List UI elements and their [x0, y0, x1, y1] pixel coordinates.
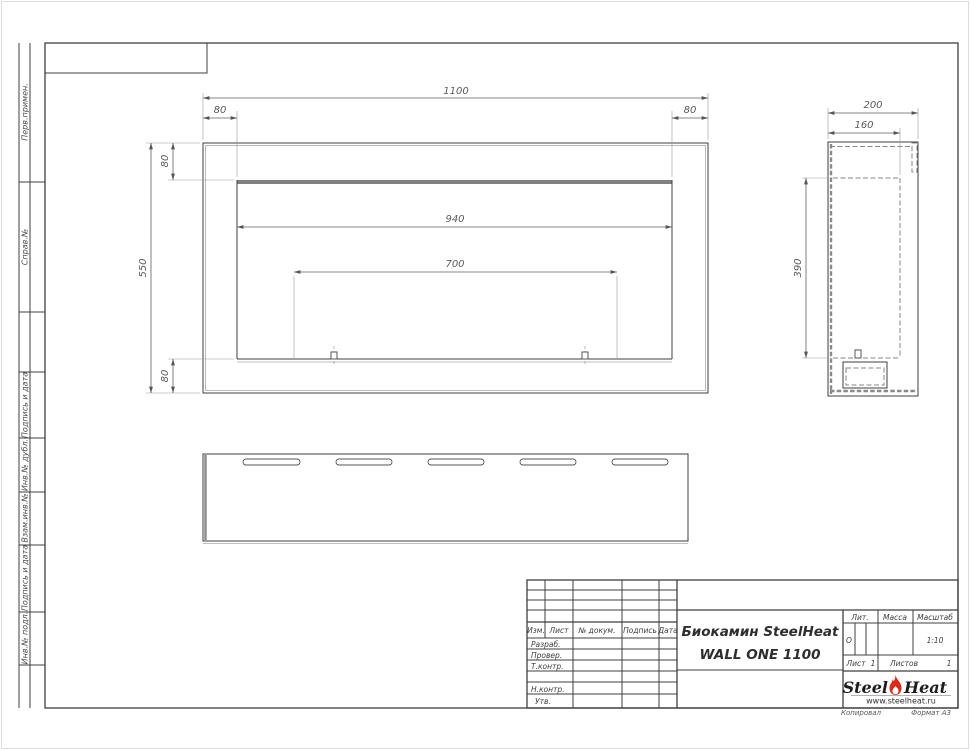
logo-heat-text: Heat	[903, 678, 948, 697]
tb-lit-value: О	[846, 636, 852, 645]
left-stamp-labels: Перв.примен. Справ.№ Подпись и дата Инв.…	[21, 83, 30, 664]
side-burner-box	[843, 362, 887, 388]
tb-row-tkontr: Т.контр.	[531, 662, 564, 671]
tb-col-izm: Изм.	[527, 626, 545, 635]
steelheat-logo: Steel Heat www.steelheat.ru	[843, 675, 951, 706]
tb-col-doc: № докум.	[578, 626, 616, 635]
bottom-view	[203, 454, 688, 544]
side-view-dimensions: 200 160 390	[793, 100, 918, 358]
burner-clip-right	[582, 352, 588, 359]
dim-opening-width: 940	[445, 214, 464, 225]
logo-url: www.steelheat.ru	[866, 697, 936, 706]
stamp-podpis-data-2: Подпись и дата	[21, 545, 30, 611]
flame-icon	[890, 675, 902, 695]
side-bracket	[912, 143, 917, 172]
dim-front-offset-top: 80	[160, 155, 171, 168]
stamp-sprav-no: Справ.№	[21, 229, 30, 265]
dim-front-height: 550	[138, 258, 149, 277]
format-label: Формат А3	[911, 709, 951, 717]
tb-row-prover: Провер.	[531, 651, 562, 660]
tb-row-razrab: Разраб.	[531, 640, 560, 649]
tb-scale-value: 1:10	[927, 636, 944, 645]
logo-steel-text: Steel	[843, 678, 888, 697]
tb-sheet-label: Лист	[845, 659, 866, 668]
stamp-perv-primen: Перв.примен.	[21, 83, 30, 141]
dim-side-height: 390	[793, 258, 804, 277]
vent-slot	[243, 459, 300, 465]
tb-sheets-value: 1	[947, 659, 952, 668]
tb-col-sign: Подпись	[623, 626, 657, 635]
drawing-canvas: Перв.примен. Справ.№ Подпись и дата Инв.…	[0, 0, 970, 750]
doc-title-line1: Биокамин SteelHeat	[682, 624, 839, 640]
tb-col-date: Дата	[657, 626, 678, 635]
stamp-podpis-data-1: Подпись и дата	[21, 372, 30, 438]
tb-sheet-value: 1	[871, 659, 876, 668]
vent-slot	[612, 459, 668, 465]
top-left-stamp-cell	[45, 43, 207, 73]
doc-title-line2: WALL ONE 1100	[699, 647, 820, 663]
vent-slot	[520, 459, 576, 465]
dim-front-offset-bottom: 80	[160, 370, 171, 383]
front-view-dimensions: 1100 80 80 550 80 80 940 700	[138, 86, 708, 393]
tb-sheets-label: Листов	[889, 659, 918, 668]
tb-row-nkontr: Н.контр.	[531, 685, 565, 694]
tb-mass-label: Масса	[883, 613, 907, 622]
tb-col-list: Лист	[548, 626, 569, 635]
stamp-vzam-inv: Взам.инв.№	[21, 493, 30, 542]
tb-row-utv: Утв.	[535, 697, 551, 706]
opening-top-edge	[237, 180, 672, 184]
tb-lit-label: Лит.	[850, 613, 868, 622]
vent-slot	[428, 459, 484, 465]
dim-front-width: 1100	[443, 86, 468, 97]
dim-burner-width: 700	[445, 259, 464, 270]
dim-side-depth: 200	[863, 100, 882, 111]
dim-side-inner-depth: 160	[854, 120, 873, 131]
copied-label: Копировал	[841, 709, 882, 717]
burner-clip-left	[331, 352, 337, 359]
dim-front-offset-left: 80	[214, 105, 227, 116]
side-burner-clip	[855, 350, 861, 358]
side-view	[828, 142, 918, 396]
stamp-inv-podl: Инв.№ подл.	[21, 612, 30, 665]
tb-scale-label: Масштаб	[917, 613, 953, 622]
stamp-inv-dubl: Инв.№ дубл.	[21, 439, 30, 491]
drawing-sheet: Перв.примен. Справ.№ Подпись и дата Инв.…	[0, 0, 970, 750]
vent-slot	[336, 459, 392, 465]
dim-front-offset-right: 80	[684, 105, 697, 116]
